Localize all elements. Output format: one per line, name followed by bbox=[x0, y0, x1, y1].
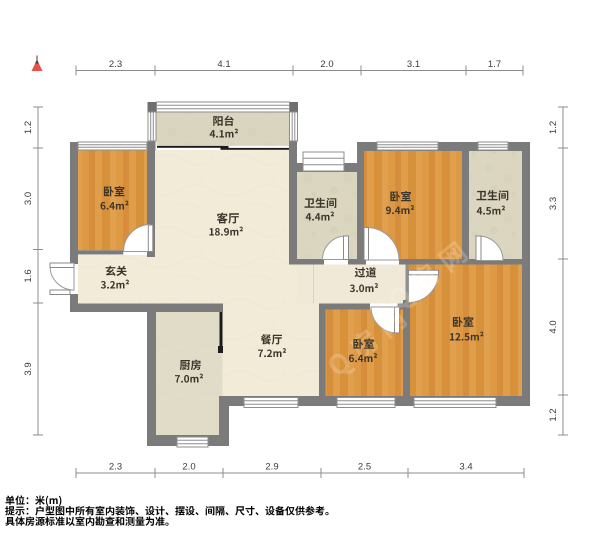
svg-text:2.0: 2.0 bbox=[182, 462, 195, 473]
svg-text:1.6: 1.6 bbox=[23, 269, 34, 282]
svg-text:4.0: 4.0 bbox=[548, 320, 559, 333]
svg-text:3.1: 3.1 bbox=[407, 59, 420, 70]
svg-text:1.7: 1.7 bbox=[488, 59, 501, 70]
svg-text:4.1: 4.1 bbox=[217, 59, 230, 70]
svg-text:2.3: 2.3 bbox=[109, 59, 122, 70]
svg-text:3.4: 3.4 bbox=[459, 462, 472, 473]
svg-text:2.5: 2.5 bbox=[358, 462, 371, 473]
svg-text:3.0: 3.0 bbox=[23, 192, 34, 205]
svg-text:3.9: 3.9 bbox=[23, 362, 34, 375]
svg-text:2.0: 2.0 bbox=[320, 59, 333, 70]
svg-text:3.3: 3.3 bbox=[548, 197, 559, 210]
svg-text:1.2: 1.2 bbox=[23, 121, 34, 134]
svg-text:1.2: 1.2 bbox=[548, 121, 559, 134]
svg-text:2.3: 2.3 bbox=[109, 462, 122, 473]
svg-text:2.9: 2.9 bbox=[265, 462, 278, 473]
svg-text:1.2: 1.2 bbox=[548, 408, 559, 421]
